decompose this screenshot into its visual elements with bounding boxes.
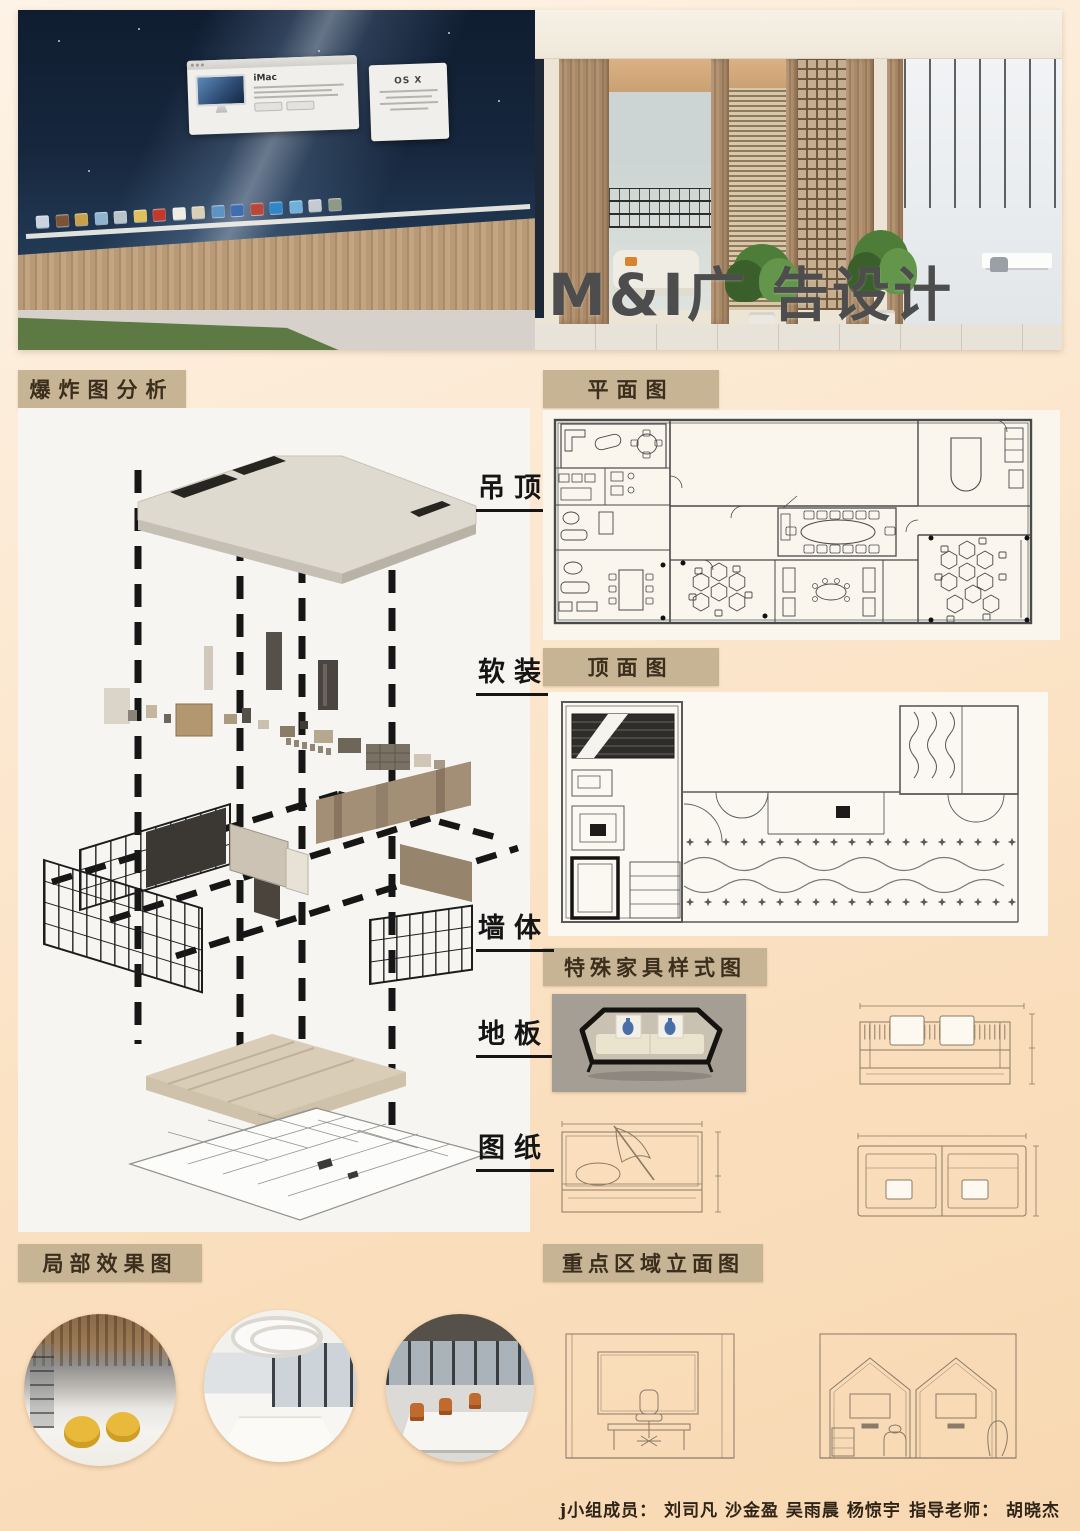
furniture-drawing-side xyxy=(552,1116,750,1230)
dock-app-icon xyxy=(133,209,147,222)
furniture-drawing-top xyxy=(846,1128,1044,1228)
dock-app-icon xyxy=(308,199,322,212)
furniture-drawing-front xyxy=(846,996,1044,1098)
credits-members: 刘司凡 沙金盈 吴雨晨 杨惊宇 xyxy=(664,1501,901,1521)
credits-advisor-label: 指导老师： xyxy=(909,1501,999,1521)
section-label-furniture: 特殊家具样式图 xyxy=(543,948,767,986)
credits-members-label: j小组成员： xyxy=(560,1501,657,1521)
poster-title-overlay: M&I广 告设计 xyxy=(548,248,1060,332)
floor-plan-drawing xyxy=(543,410,1060,638)
section-label-exploded: 爆炸图分析 xyxy=(18,370,186,408)
layer-label-sheet: 图纸 xyxy=(476,1126,554,1172)
section-label-key-elevations: 重点区域立面图 xyxy=(543,1244,763,1282)
render-circle-office-window xyxy=(204,1310,356,1462)
dock-app-icon xyxy=(172,207,186,220)
section-label-partial-renders: 局部效果图 xyxy=(18,1244,202,1282)
plan-sheet-layer xyxy=(130,1108,486,1220)
screen-wall-photo: iMac OS X xyxy=(18,10,535,350)
exploded-diagram-panel xyxy=(18,408,530,1232)
furniture-photo xyxy=(552,994,746,1092)
layer-label-floor: 地板 xyxy=(476,1012,554,1058)
ceiling-plan-panel xyxy=(548,692,1048,936)
dock-app-icon xyxy=(191,206,205,219)
render-circle-workstations xyxy=(386,1314,534,1462)
floor-layer xyxy=(146,1034,406,1130)
elevation-pod-rooms xyxy=(816,1328,1024,1470)
floor-plan-panel xyxy=(543,410,1060,640)
render-circle-lounge xyxy=(24,1314,176,1466)
poster-page: iMac OS X xyxy=(0,0,1080,1531)
dock-app-icon xyxy=(36,215,50,228)
dock-app-icon xyxy=(250,203,264,216)
dock-app-icon xyxy=(94,212,108,225)
elevation-office-wall xyxy=(560,1328,748,1470)
sofa-render xyxy=(552,994,746,1092)
balcony-railing xyxy=(609,188,713,228)
layer-label-furnishing: 软装 xyxy=(476,650,554,696)
dock-app-icon xyxy=(230,204,244,217)
dock-app-icon xyxy=(328,198,342,211)
diamond-lights-row-2 xyxy=(686,898,1016,906)
dock-app-icon xyxy=(152,208,166,221)
awning xyxy=(728,58,788,88)
osx-info-card: OS X xyxy=(369,63,450,142)
awning xyxy=(609,58,713,92)
ceiling-plan-drawing xyxy=(548,692,1048,936)
layer-label-walls: 墙体 xyxy=(476,906,554,952)
imac-thumbnail xyxy=(195,74,246,114)
window-mullions xyxy=(904,58,1062,208)
exploded-axonometric-diagram xyxy=(18,408,530,1232)
osx-card-title: OS X xyxy=(369,75,447,88)
credits-line: j小组成员： 刘司凡 沙金盈 吴雨晨 杨惊宇 指导老师： 胡晓杰 xyxy=(560,1496,1060,1521)
credits-advisor: 胡晓杰 xyxy=(1006,1501,1060,1521)
dock-app-icon xyxy=(75,213,89,226)
about-mac-window: iMac xyxy=(187,55,359,135)
dock-app-icon xyxy=(55,214,69,227)
diamond-lights-row-1 xyxy=(686,838,1016,846)
dock-app-icon xyxy=(289,200,303,213)
dock-app-icon xyxy=(269,201,283,214)
dock-app-icon xyxy=(211,205,225,218)
hero-render: iMac OS X xyxy=(18,10,1062,350)
ceiling xyxy=(535,10,1062,59)
section-label-ceiling-plan: 顶面图 xyxy=(543,648,719,686)
screen-edge xyxy=(535,18,544,318)
ceiling-layer xyxy=(138,456,476,584)
walls-layer xyxy=(44,761,472,992)
dock-app-icon xyxy=(114,211,128,224)
section-label-floor-plan: 平面图 xyxy=(543,370,719,408)
imac-window-title: iMac xyxy=(253,70,351,83)
window-buttons xyxy=(254,99,352,111)
